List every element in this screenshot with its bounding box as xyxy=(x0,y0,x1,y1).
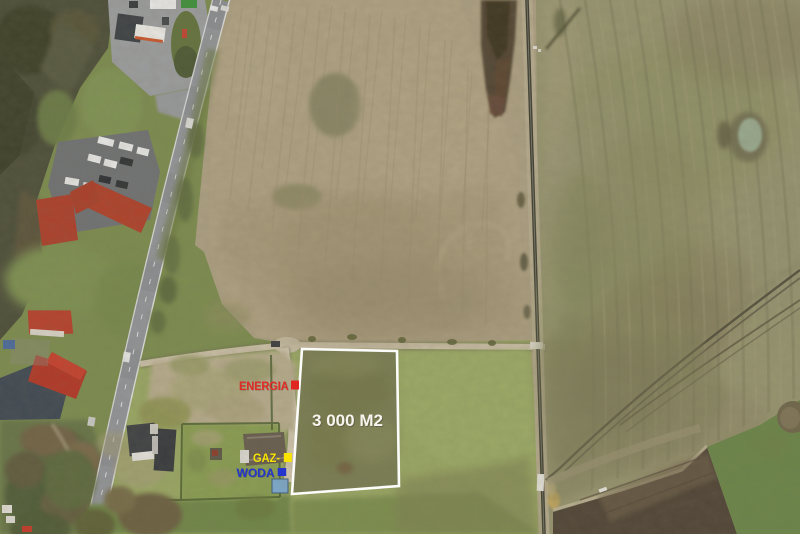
svg-text:WODA: WODA xyxy=(237,466,275,480)
svg-text:ENERGIA: ENERGIA xyxy=(239,379,289,393)
svg-text:GAZ-: GAZ- xyxy=(253,451,280,465)
svg-text:3 000 M2: 3 000 M2 xyxy=(312,411,383,430)
